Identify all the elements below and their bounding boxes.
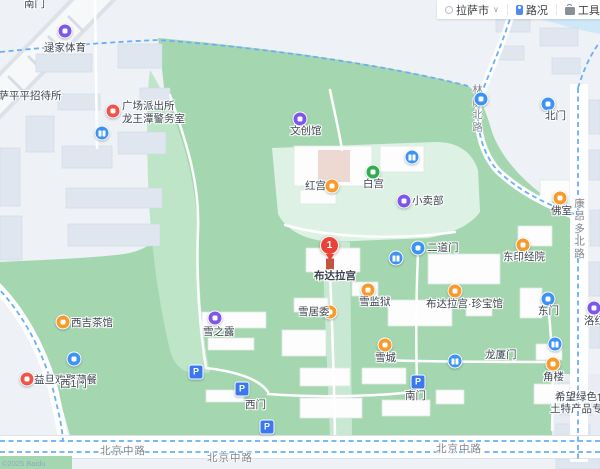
gate-beimen-label[interactable]: 北门: [545, 110, 566, 122]
treasure-museum-label[interactable]: 布达拉宫·珍宝馆: [426, 298, 503, 310]
poi-dot-north-road-icon[interactable]: [474, 92, 489, 107]
corner-tower-label[interactable]: 角楼: [543, 371, 564, 383]
city-selector[interactable]: 拉萨市 ∨: [437, 2, 507, 18]
xiji-teahouse-label[interactable]: 西吉茶馆: [71, 317, 113, 329]
road-beijing-middle-2: 北京中路: [207, 450, 253, 465]
road-kangangduo-north: 康昂多北路: [572, 198, 587, 261]
xiaomaibu-kiosk-icon[interactable]: [397, 194, 412, 209]
toilet-east-icon[interactable]: [548, 337, 563, 352]
pingping-hostel-label[interactable]: 拉萨平平招待所: [0, 90, 62, 102]
guangchang-police-station-label[interactable]: 广场派出所: [122, 100, 175, 112]
parking-south-1-icon[interactable]: P: [260, 420, 275, 435]
greenfood-store-label-2[interactable]: 土特产品专卖店: [550, 403, 600, 415]
gate-erdaomen-icon[interactable]: [411, 241, 426, 256]
beijing-road: [0, 436, 600, 459]
traffic-toggle[interactable]: 路况: [508, 2, 556, 18]
guangchang-police-station-icon[interactable]: [106, 104, 121, 119]
luohongtang-icon[interactable]: [587, 301, 600, 316]
gate-xi1men-label[interactable]: 西1门: [60, 378, 87, 390]
tools-label: 工具: [578, 2, 600, 18]
foshi-buddha-hall-icon[interactable]: [553, 191, 568, 206]
gate-nanmen-label[interactable]: 南门: [405, 390, 426, 402]
tools-icon: [565, 7, 575, 15]
tools-button[interactable]: 工具: [557, 2, 600, 18]
location-icon: [445, 6, 453, 14]
road-beijing-middle-1: 北京中路: [100, 443, 146, 458]
traffic-icon: [516, 5, 523, 15]
top-toolbar: 拉萨市 ∨ 路况 工具: [437, 0, 600, 19]
dong-scripture-house-label[interactable]: 东印经院: [503, 251, 545, 263]
lujia-sports-label[interactable]: 逯家体育: [44, 42, 86, 54]
snow-city-label[interactable]: 雪城: [375, 352, 396, 364]
xiaomaibu-kiosk-label[interactable]: 小卖部: [412, 195, 444, 207]
treasure-museum-icon[interactable]: [448, 284, 463, 299]
xuezhilu-shop-icon[interactable]: [208, 311, 223, 326]
guangchang-police-station-label-2[interactable]: 龙王潭警务室: [122, 113, 185, 125]
snow-city-icon[interactable]: [378, 338, 393, 353]
foshi-buddha-hall-label[interactable]: 佛室: [551, 205, 572, 217]
toilet-northwest-icon[interactable]: [95, 126, 110, 141]
longsha-gate-label[interactable]: 龙厦门: [485, 349, 517, 361]
destination-pin[interactable]: 1: [320, 236, 340, 262]
gate-nanmen-north-label[interactable]: 南门: [24, 0, 45, 10]
red-palace-building: [318, 150, 350, 182]
gate-xi1men-icon[interactable]: [67, 352, 82, 367]
white-palace-label[interactable]: 白宫: [363, 178, 384, 190]
wenchuang-hall-label[interactable]: 文创馆: [290, 125, 322, 137]
yidan-restaurant-icon[interactable]: [20, 372, 35, 387]
gate-ximen-label[interactable]: 西门: [245, 399, 266, 411]
road-edge-top: [0, 435, 600, 436]
gate-dongmen-label[interactable]: 东门: [538, 305, 559, 317]
toilet-center-icon[interactable]: [389, 251, 404, 266]
traffic-label: 路况: [526, 2, 548, 18]
red-palace-label[interactable]: 红宫: [305, 180, 326, 192]
gate-nanmen-icon[interactable]: P: [411, 375, 426, 390]
gate-erdaomen-label[interactable]: 二道门: [427, 242, 459, 254]
lujia-sports-icon[interactable]: [58, 24, 73, 39]
luohongtang-label[interactable]: 洛红堂: [584, 315, 600, 327]
pin-number: 1: [320, 236, 339, 255]
road-beijing-middle-3: 北京中路: [436, 441, 482, 456]
chevron-down-icon: ∨: [493, 5, 499, 14]
destination-label[interactable]: 布达拉宫: [314, 270, 356, 282]
greenfood-store-label[interactable]: 希望绿色食品: [555, 391, 600, 403]
snow-prison-label[interactable]: 雪监狱: [359, 296, 391, 308]
toilet-north-icon[interactable]: [405, 150, 420, 165]
xuezhilu-shop-label[interactable]: 雪之露: [203, 326, 235, 338]
corner-tower-icon[interactable]: [546, 357, 561, 372]
city-name: 拉萨市: [456, 2, 489, 18]
toilet-south-icon[interactable]: [448, 354, 463, 369]
red-palace-icon[interactable]: [325, 179, 340, 194]
map-base-layer: [0, 0, 600, 469]
copyright-text: ©2025 Baidu: [2, 459, 45, 468]
road-edge-bottom: [0, 458, 600, 459]
parking-west-2-icon[interactable]: P: [235, 382, 250, 397]
snow-committee-label[interactable]: 雪居委: [298, 306, 330, 318]
map-canvas[interactable]: 拉萨市 ∨ 路况 工具 南门逯家体育拉萨平平招待所广场派出所龙王潭警务室文创馆红…: [0, 0, 600, 469]
xiji-teahouse-icon[interactable]: [56, 315, 71, 330]
pin-tail: [326, 254, 334, 261]
parking-west-1-icon[interactable]: P: [189, 365, 204, 380]
